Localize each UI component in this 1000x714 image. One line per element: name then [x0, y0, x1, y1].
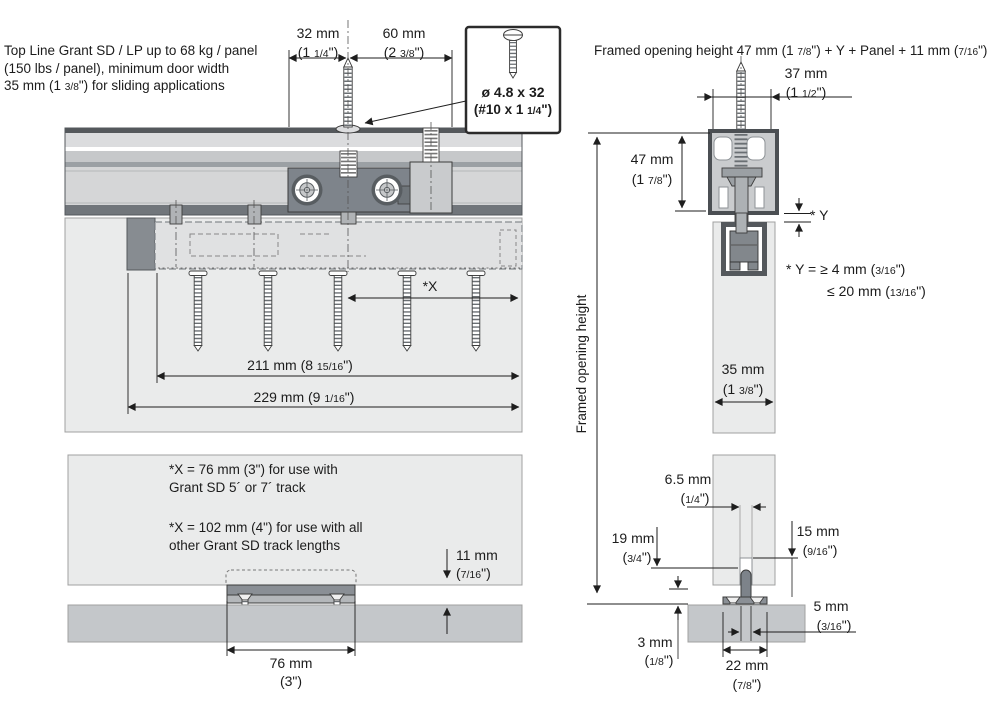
floor-strip-right-figure [688, 605, 805, 642]
intro-note: Top Line Grant SD / LP up to 68 kg / pan… [4, 42, 257, 95]
note-x-102: *X = 102 mm (4") for use with all other … [169, 519, 363, 554]
dim-22mm-label: 22 mm [726, 656, 769, 674]
dim-3mm-inch-label: (1/8") [645, 651, 674, 670]
mounting-block [127, 218, 155, 270]
screw-spec-metric: ø 4.8 x 32 [481, 83, 544, 101]
dim-19mm-inch-label: (3/4") [623, 548, 652, 567]
dim-47mm-label: 47 mm [631, 150, 674, 168]
technical-diagram-page: Top Line Grant SD / LP up to 68 kg / pan… [0, 0, 1000, 714]
dim-47mm-inch-label: (1 7/8") [632, 170, 673, 189]
dim-76mm-label: 76 mm [270, 654, 313, 672]
dim-15mm-inch-label: (9/16") [803, 541, 838, 560]
dim-5mm-inch-label: (3/16") [817, 616, 852, 635]
dim-15mm-label: 15 mm [797, 522, 840, 540]
dim-19mm-label: 19 mm [612, 529, 655, 547]
dim-229mm-label: 229 mm (9 1/16") [254, 388, 355, 407]
dim-6-5mm-inch-label: (1/4") [681, 489, 710, 508]
dim-11mm-inch-label: (7/16") [456, 564, 491, 583]
dim-35mm-inch-label: (1 3/8") [723, 380, 764, 399]
floor-guide-pin [741, 570, 751, 599]
panel-top-recess-carrier [721, 213, 767, 276]
floor-strip-left-figure [68, 605, 522, 642]
bottom-guide-bracket [227, 585, 355, 595]
framed-opening-height-axis-label: Framed opening height [573, 295, 591, 434]
dim-6-5mm-label: 6.5 mm [665, 470, 712, 488]
note-x-76: *X = 76 mm (3") for use with Grant SD 5´… [169, 461, 338, 496]
dim-11mm-label: 11 mm [456, 546, 498, 564]
framed-opening-formula: Framed opening height 47 mm (1 7/8") + Y… [594, 42, 987, 60]
y-note-line1: * Y = ≥ 4 mm (3/16") [786, 260, 905, 279]
y-gap-label: * Y [810, 206, 828, 224]
dim-22mm-inch-label: (7/8") [733, 675, 762, 694]
dim-32mm-label: 32 mm [297, 24, 340, 42]
screw-spec-imperial: (#10 x 1 1/4") [474, 101, 552, 119]
dim-32mm-inch-label: (1 1/4") [298, 43, 339, 62]
dim-x-label: *X [423, 277, 438, 295]
roller-wheel-left [292, 175, 323, 206]
dim-35mm-label: 35 mm [722, 360, 765, 378]
dim-5mm-label: 5 mm [814, 597, 849, 615]
dim-60mm-label: 60 mm [383, 24, 426, 42]
dim-3mm-label: 3 mm [638, 633, 673, 651]
dim-211mm-label: 211 mm (8 15/16") [247, 356, 353, 375]
dim-76mm-inch-label: (3") [280, 672, 302, 690]
roller-wheel-right [372, 175, 403, 206]
y-note-line2: ≤ 20 mm (13/16") [827, 282, 926, 301]
dim-37mm-label: 37 mm [785, 64, 828, 82]
dim-60mm-inch-label: (2 3/8") [384, 43, 425, 62]
dim-37mm-inch-label: (1 1/2") [786, 83, 827, 102]
mounting-rail-hidden-view [155, 222, 522, 269]
